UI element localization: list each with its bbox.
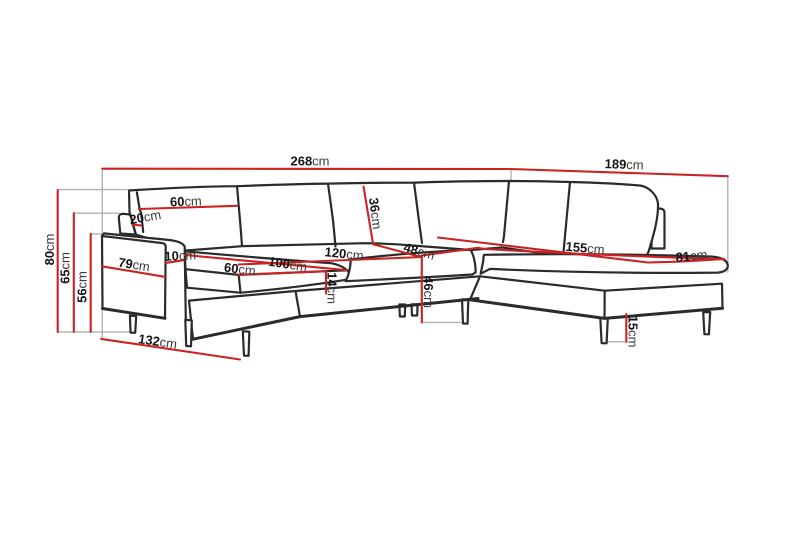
svg-text:60cm: 60cm [170,193,202,209]
svg-text:56cm: 56cm [74,271,89,303]
svg-text:268cm: 268cm [290,153,329,168]
svg-text:15cm: 15cm [626,316,641,348]
svg-text:10cm: 10cm [164,247,197,264]
svg-text:65cm: 65cm [58,252,73,284]
svg-text:189cm: 189cm [604,156,644,172]
svg-text:80cm: 80cm [42,234,57,266]
svg-text:14cm: 14cm [325,272,340,304]
svg-text:46cm: 46cm [421,276,436,308]
